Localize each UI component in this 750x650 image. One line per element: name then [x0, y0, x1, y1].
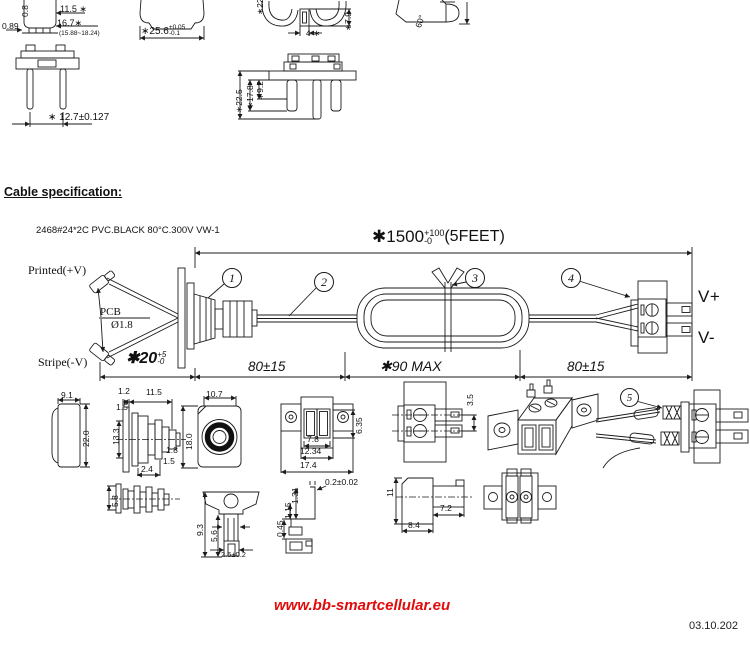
- detail-dc-plug-front: [198, 396, 241, 467]
- detail-block-top-tabs: [484, 469, 556, 523]
- tol-dn: -0.1: [169, 31, 185, 37]
- dim-17-4: 17.4: [300, 461, 317, 470]
- dim-20-value: ✱20: [126, 348, 157, 368]
- overall-length-value: ✱1500: [372, 227, 424, 247]
- dim-11-5: 11.5 ∗: [60, 5, 87, 15]
- dim-25-6-tol: +0.05 -0.1: [169, 25, 185, 37]
- dim-12-7: ∗ 12.7±0.127: [48, 112, 109, 123]
- cable-specification-drawing: 0.8 11.5 ∗ 16.7∗ (15.88~18.24) 0.89 ∗ 12…: [0, 0, 750, 650]
- balloon-3: 3: [465, 268, 485, 288]
- dim-1-2: 1.2: [118, 387, 130, 396]
- view-side-60deg: [396, 0, 470, 24]
- dim-range: (15.88~18.24): [59, 30, 100, 37]
- dim-22-0: 22.0: [82, 430, 91, 447]
- dim-20: ✱20 +5 -0: [126, 348, 166, 368]
- dim-25-6-value: ∗25.6: [141, 26, 169, 37]
- detail-crimp-terminal: [201, 492, 259, 557]
- dim-1-5a: 1.5: [116, 403, 128, 412]
- dim-3-5: 3.5: [466, 394, 475, 406]
- dim-1-31: 1.31: [291, 487, 300, 504]
- dim-2-4: 2.4: [141, 465, 153, 474]
- date-stamp: 03.10.202: [689, 620, 738, 632]
- dim-2-5: 2.5±0.2: [221, 551, 246, 559]
- dim-seg-80b: 80±15: [567, 359, 604, 374]
- tol-dn: -0: [424, 237, 444, 245]
- dim-9-2: ∗9.2: [256, 81, 265, 100]
- dim-5-8: 5.8: [111, 495, 120, 507]
- dim-22-5: ∗22.5: [235, 89, 244, 113]
- dim-6-35: 6.35: [355, 417, 364, 434]
- label-v-minus: V-: [698, 328, 715, 348]
- detail-plug-body-side: [394, 478, 472, 533]
- dim-1-15: 1.15: [284, 502, 293, 519]
- dim-9-1: 9.1: [61, 391, 73, 400]
- dim-11: 11: [386, 488, 395, 497]
- label-pcb: PCB: [100, 306, 121, 318]
- dim-1-5b: 1.5: [163, 457, 175, 466]
- overall-length-tol: +100 -0: [424, 229, 444, 245]
- overall-length-feet: (5FEET): [444, 228, 504, 246]
- balloon-5: 5: [620, 388, 639, 407]
- dim-8-4: 8.4: [408, 521, 420, 530]
- detail-wires-terminal: [596, 390, 748, 468]
- website-link[interactable]: www.bb-smartcellular.eu: [274, 597, 450, 614]
- detail-terminal-isometric: [488, 380, 598, 454]
- dim-13-3: 13.3: [112, 428, 121, 445]
- dim-10-7: 10.7: [206, 390, 223, 399]
- label-printed-plus-v: Printed(+V): [28, 264, 86, 277]
- dim-9-3: 9.3: [196, 524, 205, 536]
- dim-0-2: 0.2±0.02: [325, 478, 358, 487]
- balloon-1: 1: [222, 268, 242, 288]
- dim-22: ∗22: [256, 0, 265, 15]
- dim-7-8: 7.8: [307, 435, 319, 444]
- dim-18-0: 18.0: [185, 433, 194, 450]
- label-v-plus: V+: [698, 287, 720, 307]
- tol-dn: -0: [157, 358, 166, 366]
- dim-12-34: 12.34: [300, 447, 321, 456]
- dim-17-8: ∗17.8: [246, 85, 255, 109]
- label-pcb-diameter: Ø1.8: [111, 319, 133, 331]
- dim-11-5-detail: 11.5: [146, 388, 162, 397]
- dim-5-6: 5.6: [210, 530, 219, 542]
- dim-seg-90max: ✱90 MAX: [380, 358, 442, 375]
- dim-seg-80a: 80±15: [248, 359, 285, 374]
- label-stripe-minus-v: Stripe(-V): [38, 356, 87, 369]
- dim-20-tol: +5 -0: [157, 351, 166, 366]
- dim-7-9: ∗7.9: [344, 12, 353, 31]
- balloon-2: 2: [314, 272, 334, 292]
- dim-0-8: 0.8: [21, 5, 30, 17]
- dim-1-8: 1.8: [166, 446, 178, 455]
- dim-0-89: 0.89: [2, 22, 19, 31]
- page-title: Cable specification:: [4, 186, 122, 200]
- cable-spec-text: 2468#24*2C PVC.BLACK 80°C.300V VW-1: [36, 226, 220, 236]
- dim-16-7: 16.7∗: [57, 19, 82, 29]
- dim-25-6: ∗25.6 +0.05 -0.1: [141, 25, 185, 37]
- overall-length-dim: ✱1500 +100 -0 (5FEET): [372, 227, 505, 247]
- dim-0-45: 0.45: [276, 520, 285, 537]
- balloon-4: 4: [561, 268, 581, 288]
- dim-7-2: 7.2: [440, 504, 452, 513]
- dim-4: 4 ∗: [306, 29, 320, 38]
